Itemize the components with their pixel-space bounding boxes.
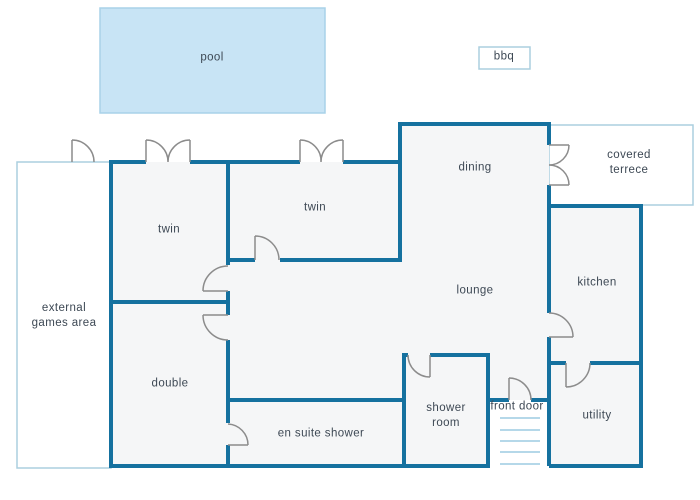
external-games-area-shape xyxy=(17,162,111,468)
pool-group xyxy=(100,8,325,113)
entrance-steps xyxy=(500,418,540,464)
twin-2-patio-double-door xyxy=(300,140,343,162)
pool-shape xyxy=(100,8,325,113)
twin-1-patio-double-door xyxy=(146,140,190,162)
covered-terrace-shape xyxy=(549,125,693,205)
external-games-area-door xyxy=(72,140,94,162)
floor-plan-svg xyxy=(0,0,700,500)
bbq-shape xyxy=(479,47,530,69)
floor-plan-canvas: pool bbq dining covered terrece twin twi… xyxy=(0,0,700,500)
